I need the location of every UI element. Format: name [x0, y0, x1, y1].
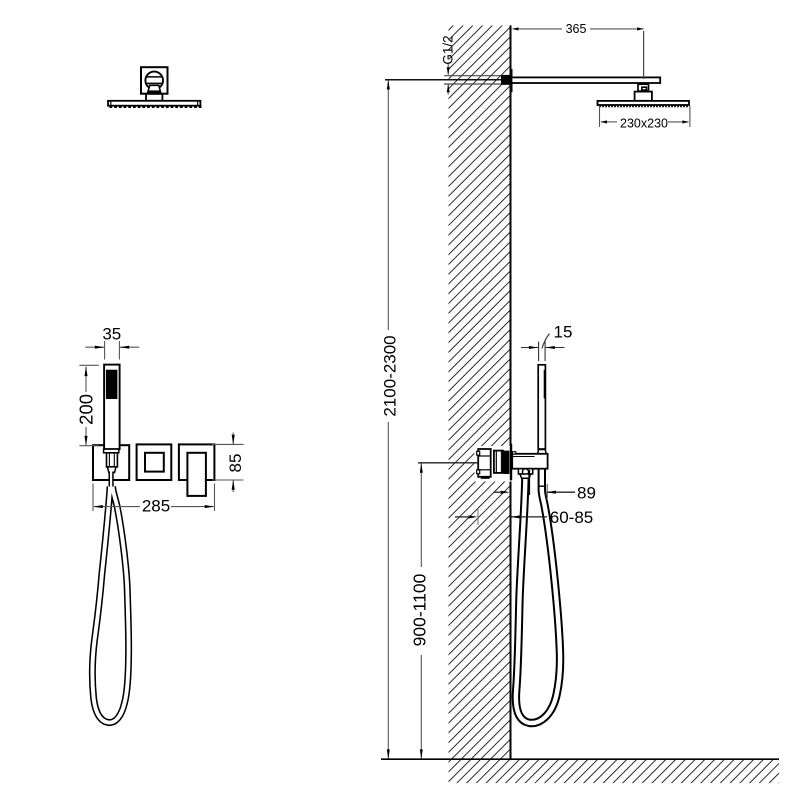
- svg-text:2100-2300: 2100-2300: [381, 335, 400, 416]
- svg-text:89: 89: [577, 483, 596, 502]
- svg-text:15: 15: [554, 323, 573, 342]
- svg-text:G1/2: G1/2: [441, 35, 456, 64]
- svg-text:900-1100: 900-1100: [410, 573, 430, 646]
- svg-text:60-85: 60-85: [550, 508, 593, 527]
- svg-text:285: 285: [142, 496, 170, 515]
- svg-text:365: 365: [566, 22, 587, 36]
- svg-text:200: 200: [76, 394, 97, 425]
- svg-text:35: 35: [102, 325, 121, 344]
- svg-text:230x230: 230x230: [620, 116, 668, 130]
- svg-text:85: 85: [226, 454, 245, 473]
